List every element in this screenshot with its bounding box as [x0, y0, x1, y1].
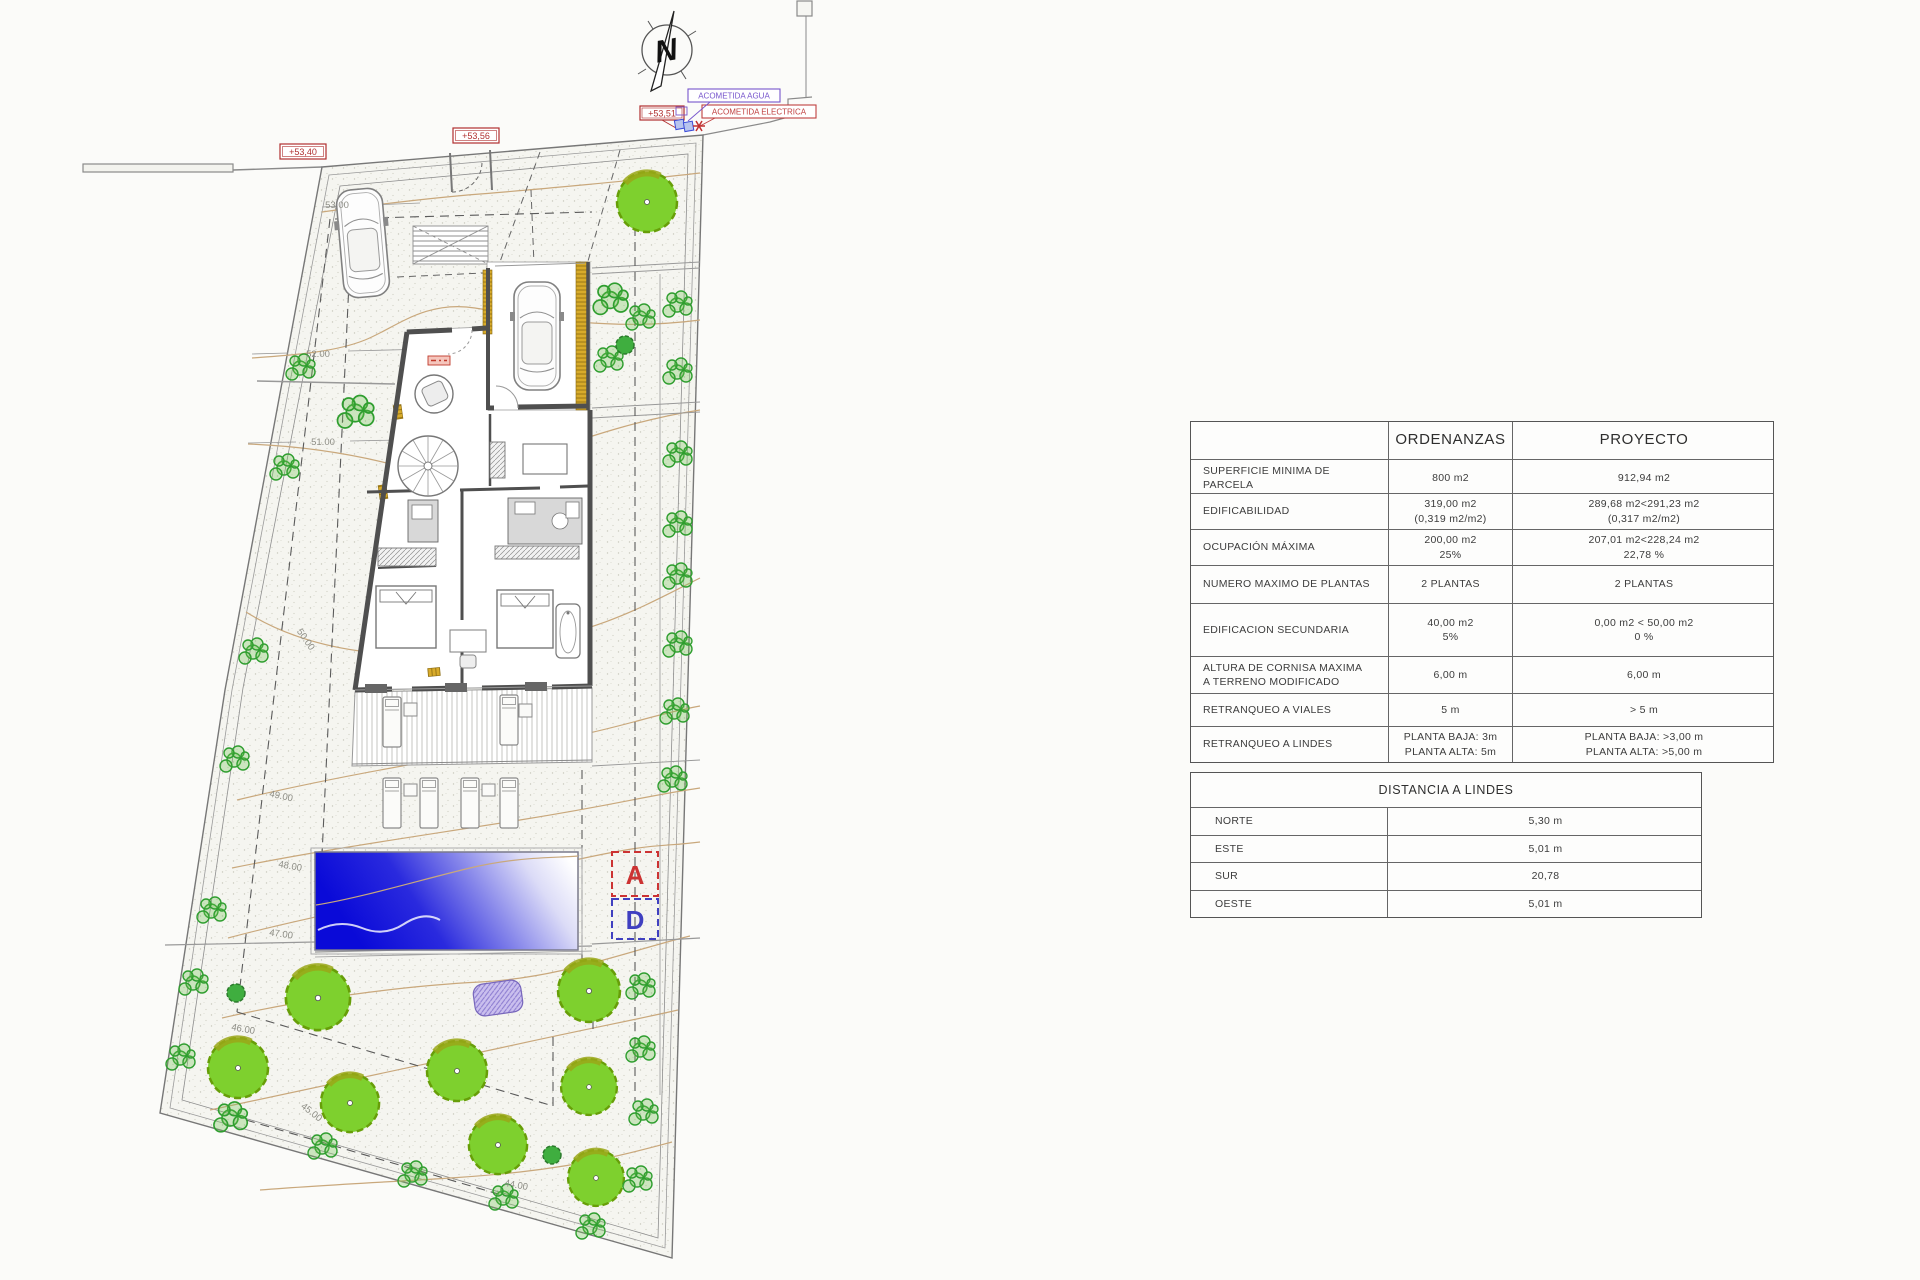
svg-text:52.00: 52.00 — [306, 349, 330, 360]
distancia-lindes-table: DISTANCIA A LINDES NORTE 5,30 m ESTE 5,0… — [1190, 772, 1702, 918]
section-d-label: D — [626, 905, 645, 935]
normativa-table: ORDENANZAS PROYECTO SUPERFICIE MINIMA DE… — [1190, 421, 1774, 763]
north-label: N — [652, 31, 681, 69]
architectural-site-plan-sheet: { "plan": { "markers": { "m1": "+53,40",… — [0, 0, 1920, 1280]
marker-53-56: +53,56 — [453, 128, 499, 143]
table-row: ALTURA DE CORNISA MAXIMA A TERRENO MODIF… — [1191, 656, 1773, 693]
lindes-title: DISTANCIA A LINDES — [1191, 773, 1701, 807]
spiral-stair — [398, 436, 458, 496]
table-row: SUPERFICIE MINIMA DE PARCELA 800 m2 912,… — [1191, 459, 1773, 493]
table-row: EDIFICABILIDAD 319,00 m2 (0,319 m2/m2) 2… — [1191, 493, 1773, 529]
normativa-header-row: ORDENANZAS PROYECTO — [1191, 422, 1773, 459]
table-row: ESTE 5,01 m — [1191, 835, 1701, 863]
svg-text:+53,51: +53,51 — [648, 109, 676, 119]
table-row: OCUPACIÓN MÁXIMA 200,00 m2 25% 207,01 m2… — [1191, 529, 1773, 565]
svg-text:+53,40: +53,40 — [289, 147, 317, 157]
table-row: SUR 20,78 — [1191, 862, 1701, 890]
swimming-pool — [311, 848, 582, 954]
section-a-label: A — [626, 860, 645, 890]
entry-stairs — [413, 226, 488, 264]
marker-acometida-electrica: ACOMETIDA ELECTRICA — [702, 105, 816, 118]
svg-text:ACOMETIDA AGUA: ACOMETIDA AGUA — [698, 92, 770, 101]
marker-53-51: +53,51 — [640, 106, 684, 120]
marker-53-40: +53,40 — [280, 144, 326, 159]
table-row: RETRANQUEO A LINDES PLANTA BAJA: 3m PLAN… — [1191, 726, 1773, 762]
header-proyecto: PROYECTO — [1513, 422, 1775, 459]
table-row: NORTE 5,30 m — [1191, 807, 1701, 835]
table-row: NUMERO MAXIMO DE PLANTAS 2 PLANTAS 2 PLA… — [1191, 565, 1773, 603]
svg-text:51.00: 51.00 — [311, 437, 335, 448]
marker-acometida-agua: ACOMETIDA AGUA — [688, 89, 780, 102]
table-row: EDIFICACION SECUNDARIA 40,00 m2 5% 0,00 … — [1191, 603, 1773, 656]
header-ordenanzas: ORDENANZAS — [1389, 422, 1513, 459]
svg-text:53.00: 53.00 — [325, 200, 349, 211]
hatched-area — [472, 979, 524, 1017]
table-row: RETRANQUEO A VIALES 5 m > 5 m — [1191, 693, 1773, 726]
level-chip — [428, 356, 450, 365]
svg-text:ACOMETIDA ELECTRICA: ACOMETIDA ELECTRICA — [712, 108, 807, 117]
header-blank — [1191, 422, 1389, 459]
north-compass: N — [638, 11, 696, 91]
svg-text:+53,56: +53,56 — [462, 131, 490, 141]
table-row: OESTE 5,01 m — [1191, 890, 1701, 918]
